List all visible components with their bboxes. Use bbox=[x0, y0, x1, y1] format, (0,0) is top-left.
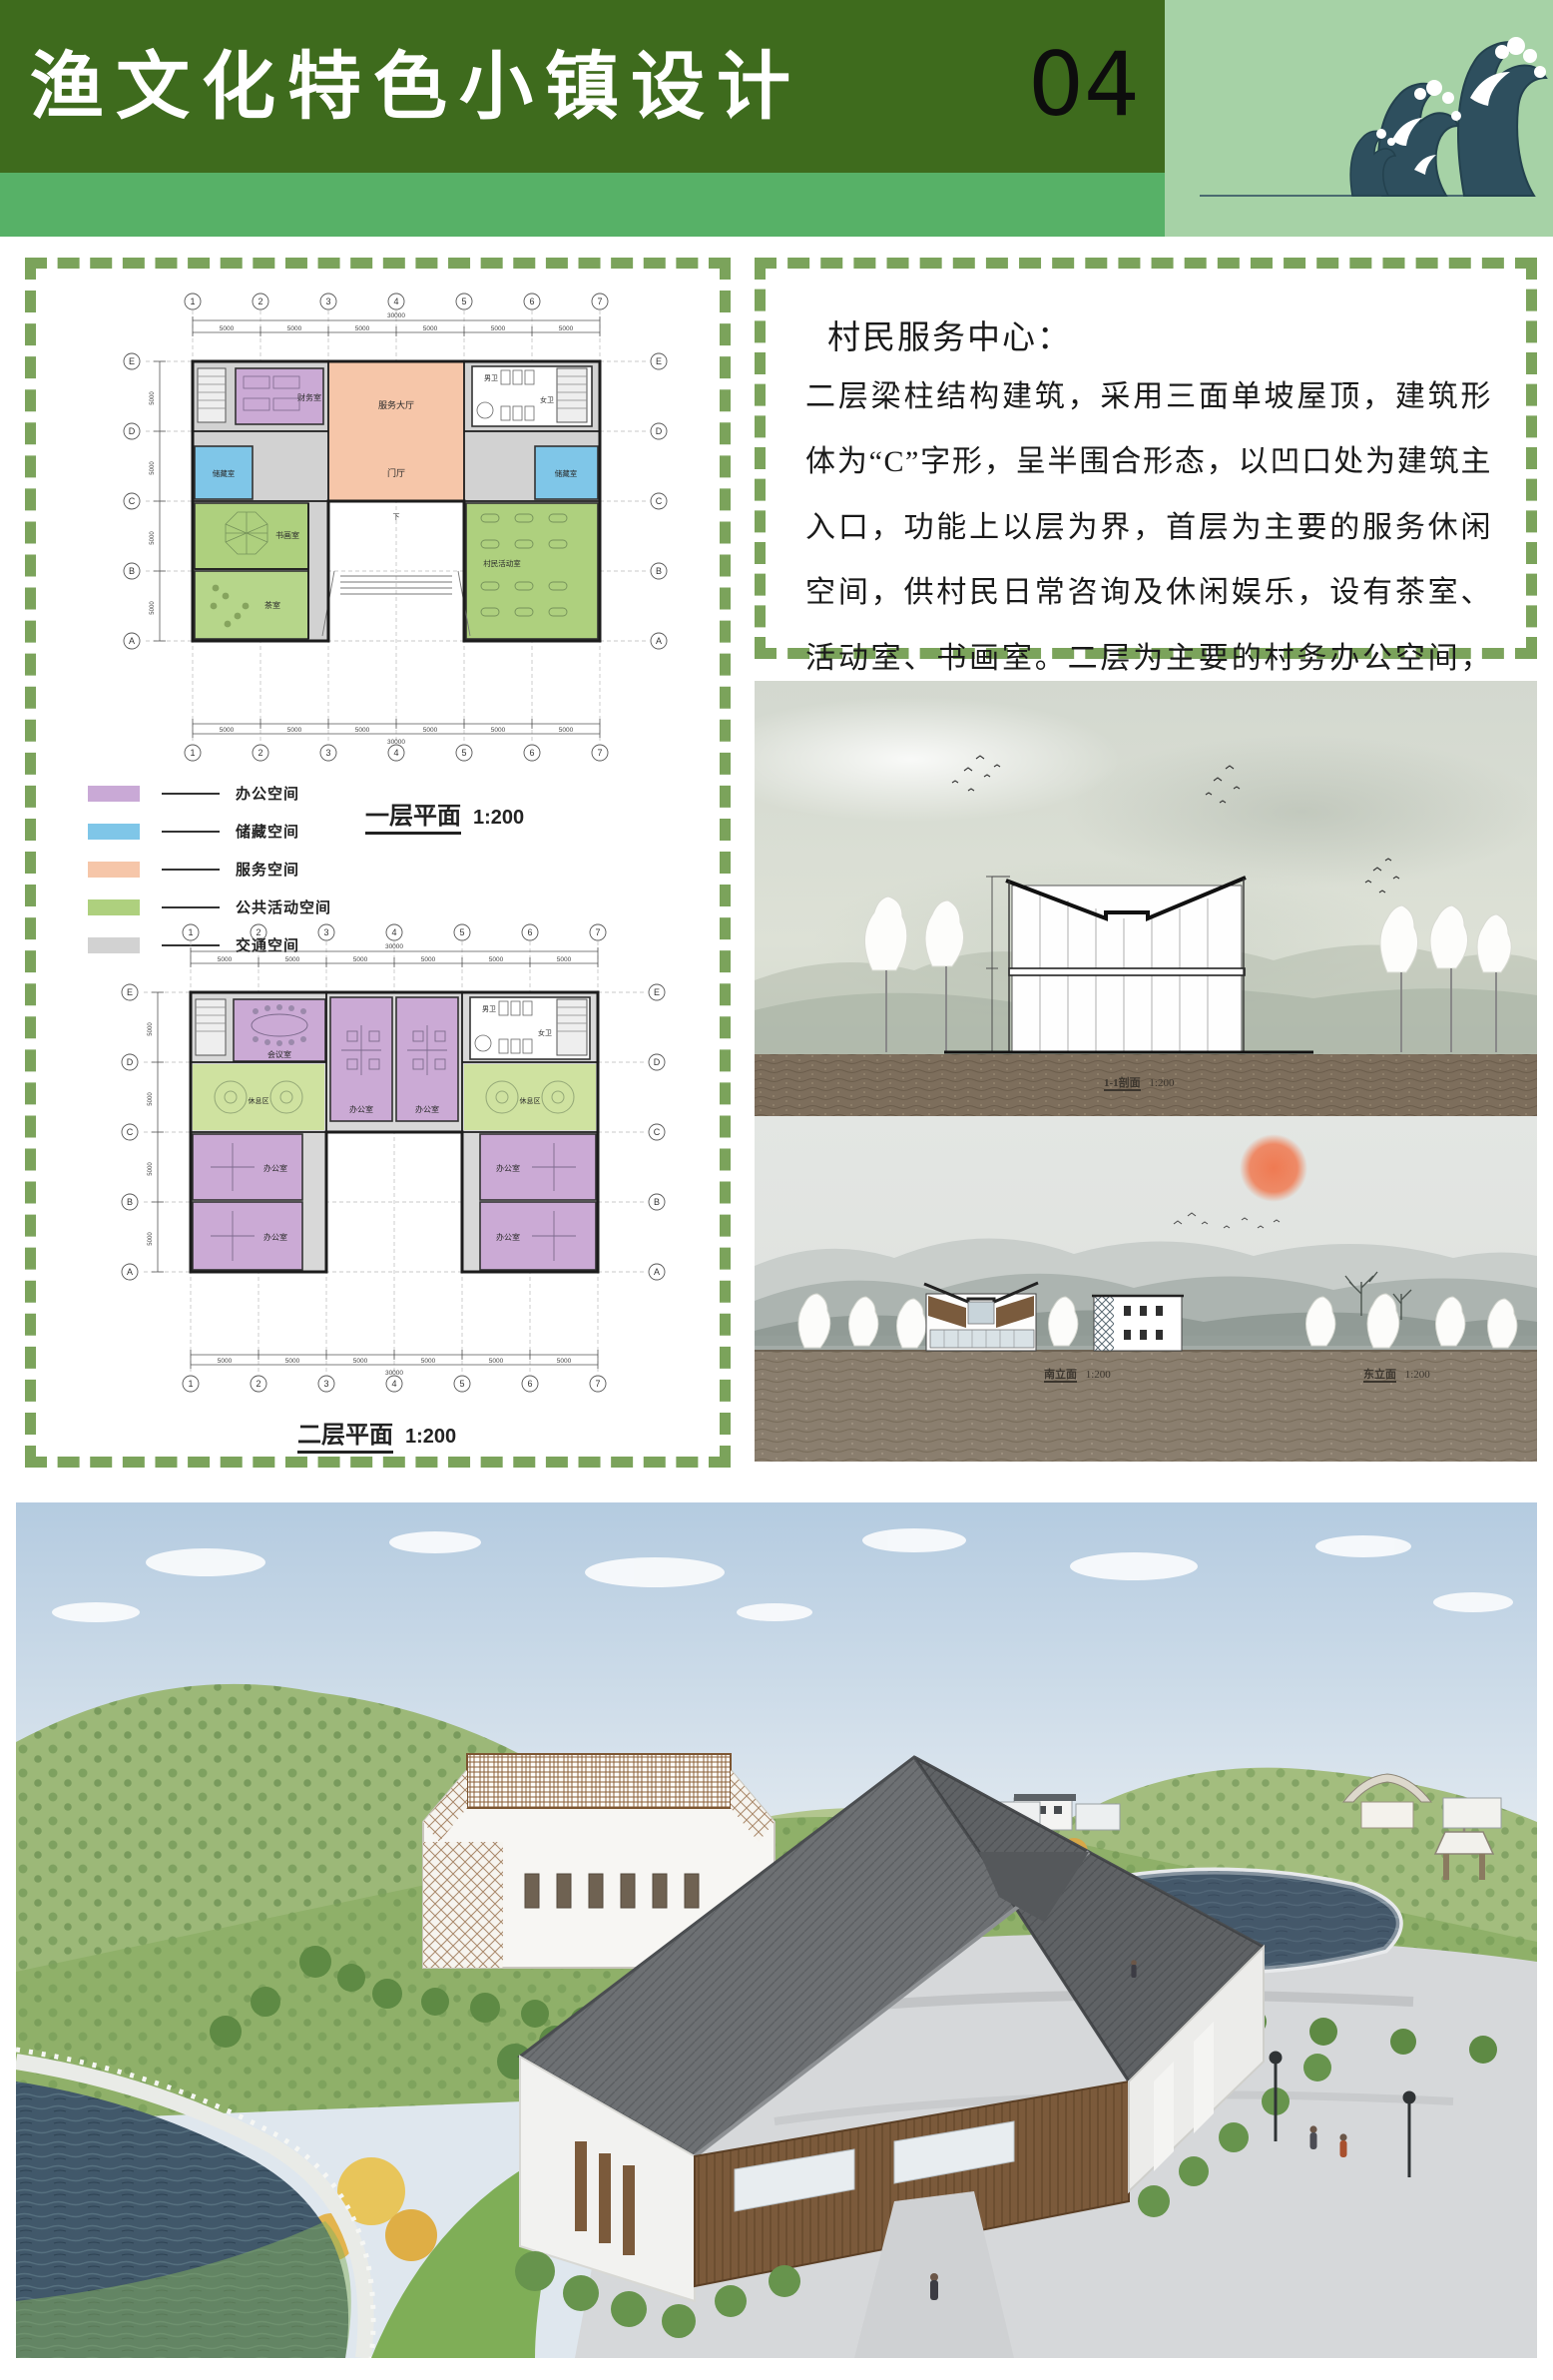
room-label: 村民活动室 bbox=[483, 558, 521, 568]
plan2-row-bubbles-right: EDC BA bbox=[654, 987, 661, 1277]
svg-text:E: E bbox=[654, 987, 660, 997]
svg-text:3: 3 bbox=[325, 748, 330, 758]
aerial-rendering bbox=[16, 1502, 1537, 2358]
elevation-east-title: 东立面 bbox=[1363, 1369, 1396, 1383]
plan2-row-bubbles-left: EDC BA bbox=[127, 987, 134, 1277]
svg-text:E: E bbox=[656, 356, 662, 366]
description-panel: 村民服务中心： 二层梁柱结构建筑，采用三面单坡屋顶，建筑形体为“C”字形，呈半围… bbox=[755, 258, 1537, 659]
legend-line bbox=[162, 869, 220, 871]
room-label: 休息区 bbox=[249, 1096, 269, 1105]
svg-text:D: D bbox=[127, 1057, 134, 1067]
svg-text:D: D bbox=[656, 426, 663, 436]
svg-text:4: 4 bbox=[393, 748, 398, 758]
svg-text:5000: 5000 bbox=[220, 727, 235, 734]
svg-text:E: E bbox=[127, 987, 133, 997]
svg-text:C: C bbox=[127, 1127, 134, 1137]
bird-flock bbox=[952, 756, 1399, 892]
svg-text:5: 5 bbox=[459, 927, 464, 937]
legend-label: 储藏空间 bbox=[236, 821, 299, 842]
svg-text:5000: 5000 bbox=[148, 1232, 154, 1246]
svg-text:5000: 5000 bbox=[220, 325, 235, 332]
aerial-view bbox=[16, 1502, 1537, 2358]
svg-text:5000: 5000 bbox=[150, 461, 156, 475]
description-heading: 村民服务中心： bbox=[827, 310, 1072, 358]
svg-text:A: A bbox=[656, 636, 662, 646]
room-label: 女卫 bbox=[540, 395, 554, 404]
plan1-caption: 一层平面1:200 bbox=[365, 796, 524, 831]
svg-text:6: 6 bbox=[527, 1379, 532, 1389]
legend-item: 储藏空间 bbox=[88, 818, 331, 845]
svg-text:5000: 5000 bbox=[423, 727, 438, 734]
svg-text:5000: 5000 bbox=[353, 956, 368, 963]
room-label: 办公室 bbox=[263, 1163, 287, 1173]
legend-item: 办公空间 bbox=[88, 780, 331, 807]
svg-text:5000: 5000 bbox=[559, 325, 574, 332]
elevation-rendering: 南立面 1:200 东立面 1:200 bbox=[755, 1116, 1537, 1462]
svg-text:5000: 5000 bbox=[421, 956, 436, 963]
svg-text:C: C bbox=[654, 1127, 661, 1137]
legend-item: 服务空间 bbox=[88, 856, 331, 883]
svg-text:D: D bbox=[129, 426, 136, 436]
svg-text:3: 3 bbox=[325, 297, 330, 306]
svg-text:2: 2 bbox=[256, 1379, 260, 1389]
room-label: 女卫 bbox=[538, 1028, 552, 1037]
elevation-east-scale: 1:200 bbox=[1405, 1369, 1430, 1381]
legend-line bbox=[162, 793, 220, 795]
plan2-caption-title: 二层平面 bbox=[297, 1423, 393, 1454]
elevation-south-title: 南立面 bbox=[1044, 1369, 1077, 1383]
room-label: 办公室 bbox=[415, 1104, 439, 1114]
svg-text:5000: 5000 bbox=[557, 1358, 572, 1365]
svg-text:7: 7 bbox=[597, 748, 602, 758]
section-rendering: 1-1剖面 1:200 bbox=[755, 681, 1537, 1116]
svg-text:E: E bbox=[129, 356, 135, 366]
svg-text:5000: 5000 bbox=[489, 956, 504, 963]
svg-text:5000: 5000 bbox=[218, 956, 233, 963]
svg-text:5000: 5000 bbox=[559, 727, 574, 734]
stair-down-label: 下 bbox=[393, 513, 400, 521]
room-label: 书画室 bbox=[275, 530, 299, 540]
svg-text:4: 4 bbox=[393, 297, 398, 306]
room-label: 茶室 bbox=[264, 600, 280, 610]
svg-text:5000: 5000 bbox=[218, 1358, 233, 1365]
svg-text:6: 6 bbox=[529, 297, 534, 306]
svg-text:5000: 5000 bbox=[150, 531, 156, 545]
room-label: 办公室 bbox=[496, 1163, 520, 1173]
svg-text:7: 7 bbox=[595, 1379, 600, 1389]
svg-text:4: 4 bbox=[391, 1379, 396, 1389]
elevation-south-scale: 1:200 bbox=[1086, 1369, 1111, 1381]
svg-text:3: 3 bbox=[323, 927, 328, 937]
section-caption-title: 1-1剖面 bbox=[1104, 1077, 1141, 1091]
svg-text:B: B bbox=[127, 1197, 133, 1207]
svg-text:5000: 5000 bbox=[287, 325, 302, 332]
svg-text:5000: 5000 bbox=[421, 1358, 436, 1365]
room-label: 会议室 bbox=[267, 1049, 291, 1059]
legend-line bbox=[162, 831, 220, 833]
svg-text:5000: 5000 bbox=[148, 1162, 154, 1176]
room-label: 男卫 bbox=[484, 374, 498, 382]
svg-text:D: D bbox=[654, 1057, 661, 1067]
room-label: 储藏室 bbox=[555, 468, 578, 478]
floor-plans-panel: 500050005000 500050005000 30000 50005000… bbox=[25, 258, 731, 1468]
east-elevation-building bbox=[1092, 1296, 1184, 1351]
svg-text:5000: 5000 bbox=[489, 1358, 504, 1365]
plan1-row-bubbles-left: EDC BA bbox=[129, 356, 136, 646]
plan2-col-bubbles-top: 123 4567 bbox=[188, 927, 600, 937]
svg-text:5000: 5000 bbox=[353, 1358, 368, 1365]
svg-text:5: 5 bbox=[459, 1379, 464, 1389]
wave-panel bbox=[1165, 0, 1553, 237]
plan2-total-width: 30000 bbox=[385, 943, 403, 950]
svg-text:5000: 5000 bbox=[355, 727, 370, 734]
svg-text:2: 2 bbox=[258, 297, 262, 306]
svg-text:5000: 5000 bbox=[557, 956, 572, 963]
section-caption-scale: 1:200 bbox=[1149, 1077, 1174, 1089]
elevation-south-caption: 南立面 1:200 bbox=[1044, 1366, 1111, 1382]
page-title: 渔文化特色小镇设计 bbox=[30, 18, 948, 158]
poster-page: 渔文化特色小镇设计 04 bbox=[0, 0, 1553, 2380]
sun bbox=[1240, 1134, 1307, 1202]
svg-text:2: 2 bbox=[256, 927, 260, 937]
legend-swatch-storage bbox=[88, 824, 140, 840]
svg-text:6: 6 bbox=[529, 748, 534, 758]
room-label: 财务室 bbox=[297, 392, 321, 402]
room-label: 办公室 bbox=[263, 1232, 287, 1242]
svg-text:A: A bbox=[654, 1267, 660, 1277]
plan1-col-bubbles-top: 123 4567 bbox=[190, 297, 602, 306]
svg-text:5000: 5000 bbox=[423, 325, 438, 332]
svg-text:5: 5 bbox=[461, 297, 466, 306]
plan2-dims-left: 5000 5000 5000 5000 bbox=[148, 1022, 154, 1246]
svg-text:1: 1 bbox=[188, 927, 193, 937]
svg-text:A: A bbox=[127, 1267, 133, 1277]
plan2-caption: 二层平面1:200 bbox=[297, 1415, 456, 1450]
svg-text:5000: 5000 bbox=[285, 956, 300, 963]
legend-swatch-office bbox=[88, 786, 140, 802]
plan1-total-width: 30000 bbox=[387, 312, 405, 319]
room-label: 休息区 bbox=[520, 1096, 541, 1105]
room-label: 储藏室 bbox=[213, 468, 236, 478]
svg-text:1: 1 bbox=[190, 748, 195, 758]
svg-text:5000: 5000 bbox=[150, 391, 156, 405]
svg-text:5000: 5000 bbox=[148, 1092, 154, 1106]
plan1-col-bubbles-bottom: 123 4567 bbox=[190, 748, 602, 758]
svg-text:C: C bbox=[129, 496, 136, 506]
svg-text:5000: 5000 bbox=[287, 727, 302, 734]
plan1-dims-left: 5000 5000 5000 5000 bbox=[150, 391, 156, 615]
svg-text:5000: 5000 bbox=[285, 1358, 300, 1365]
svg-text:2: 2 bbox=[258, 748, 262, 758]
svg-text:B: B bbox=[656, 566, 662, 576]
svg-text:1: 1 bbox=[188, 1379, 193, 1389]
first-floor-plan: 500050005000 500050005000 30000 50005000… bbox=[88, 277, 687, 776]
svg-text:C: C bbox=[656, 496, 663, 506]
svg-text:5000: 5000 bbox=[355, 325, 370, 332]
svg-text:7: 7 bbox=[597, 297, 602, 306]
section-drawing bbox=[755, 681, 1537, 1116]
svg-text:3: 3 bbox=[323, 1379, 328, 1389]
room-label: 服务大厅 bbox=[378, 399, 414, 410]
plan2-col-bubbles-bottom: 123 4567 bbox=[188, 1379, 600, 1389]
legend-swatch-service bbox=[88, 862, 140, 878]
plan1-caption-title: 一层平面 bbox=[365, 804, 461, 835]
second-floor-plan: 500050005000 500050005000 30000 50005000… bbox=[66, 907, 705, 1407]
svg-text:4: 4 bbox=[391, 927, 396, 937]
svg-text:B: B bbox=[129, 566, 135, 576]
elevation-east-caption: 东立面 1:200 bbox=[1363, 1366, 1430, 1382]
svg-text:A: A bbox=[129, 636, 135, 646]
plan2-caption-scale: 1:200 bbox=[405, 1426, 456, 1448]
wave-illustration bbox=[1165, 0, 1553, 237]
svg-text:1: 1 bbox=[190, 297, 195, 306]
svg-text:6: 6 bbox=[527, 927, 532, 937]
svg-text:5000: 5000 bbox=[150, 601, 156, 615]
svg-text:5000: 5000 bbox=[148, 1022, 154, 1036]
page-number: 04 bbox=[1028, 30, 1168, 140]
section-caption: 1-1剖面 1:200 bbox=[1104, 1074, 1174, 1090]
svg-text:B: B bbox=[654, 1197, 660, 1207]
svg-text:7: 7 bbox=[595, 927, 600, 937]
svg-text:5000: 5000 bbox=[491, 325, 506, 332]
elevation-drawing bbox=[755, 1116, 1537, 1462]
room-label: 门厅 bbox=[387, 467, 405, 478]
plan1-row-bubbles-right: EDC BA bbox=[656, 356, 663, 646]
header-substrip bbox=[0, 173, 1165, 237]
bird-flock bbox=[1174, 1213, 1280, 1228]
room-label: 办公室 bbox=[349, 1104, 373, 1114]
svg-text:5: 5 bbox=[461, 748, 466, 758]
room-label: 办公室 bbox=[496, 1232, 520, 1242]
legend-label: 办公空间 bbox=[236, 783, 299, 804]
plan1-caption-scale: 1:200 bbox=[473, 807, 524, 829]
legend-label: 服务空间 bbox=[236, 859, 299, 880]
room-label: 男卫 bbox=[482, 1005, 496, 1013]
svg-text:5000: 5000 bbox=[491, 727, 506, 734]
